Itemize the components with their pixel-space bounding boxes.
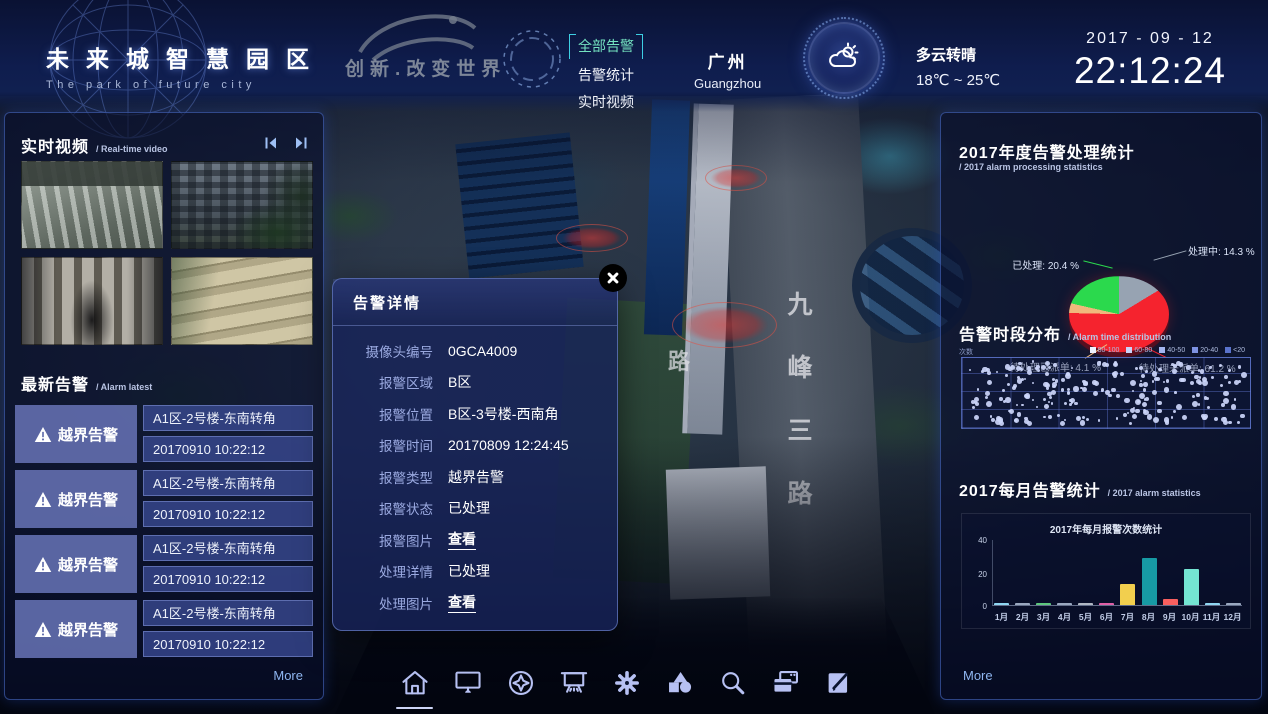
- alarm-list-item[interactable]: 越界告警 A1区-2号楼-东南转角 20170910 10:22:12: [15, 405, 313, 463]
- map-alarm-zone[interactable]: [705, 165, 767, 191]
- camera-id-value: 0GCA4009: [448, 343, 517, 359]
- bar-ytick: 40: [965, 536, 987, 545]
- cloud-sun-icon: [824, 38, 864, 78]
- pie-leader-line: [1154, 250, 1187, 260]
- alarm-list: 越界告警 A1区-2号楼-东南转角 20170910 10:22:12 越界告警…: [15, 405, 313, 658]
- alarm-type: 越界告警: [58, 619, 118, 640]
- alarm-time: 20170910 10:22:12: [143, 501, 313, 527]
- weather-widget: [808, 22, 880, 94]
- alarm-status-value: 已处理: [448, 498, 490, 518]
- alarm-location: A1区-2号楼-东南转角: [143, 405, 313, 431]
- ink-ring-decoration: [497, 24, 567, 94]
- city-name-en: Guangzhou: [694, 76, 761, 91]
- field-label: 报警类型: [347, 467, 433, 487]
- left-panel-more-link[interactable]: More: [273, 668, 303, 683]
- search-icon[interactable]: [716, 663, 749, 703]
- process-image-link[interactable]: 查看: [448, 592, 476, 613]
- nav-item-all-alarms[interactable]: 全部告警: [569, 34, 643, 58]
- alarm-section-subtitle: / Alarm latest: [96, 382, 152, 392]
- map-road-name-left: 路: [668, 344, 690, 376]
- field-label: 报警区域: [347, 372, 433, 392]
- bar-ytick: 20: [965, 570, 987, 579]
- scatter-plot: [961, 357, 1251, 429]
- pie-section-title: 2017年度告警处理统计: [959, 139, 1135, 163]
- monitor-icon[interactable]: [451, 663, 484, 703]
- warning-icon: [34, 426, 52, 443]
- alarm-type-value: 越界告警: [448, 467, 504, 487]
- video-grid: [21, 161, 313, 345]
- video-prev-icon[interactable]: [263, 135, 279, 151]
- map-road-name: 九峰三路: [780, 291, 816, 543]
- brand-block: 未来城智慧园区 The park of future city: [46, 40, 326, 91]
- field-label: 报警图片: [347, 530, 433, 550]
- pie-label-processing: 处理中: 14.3 %: [1188, 243, 1255, 258]
- alarm-image-link[interactable]: 查看: [448, 529, 476, 550]
- alarm-area-value: B区: [448, 372, 471, 392]
- edit-icon[interactable]: [822, 663, 855, 703]
- field-label: 报警时间: [347, 435, 433, 455]
- alarm-location: A1区-2号楼-东南转角: [143, 535, 313, 561]
- field-label: 报警位置: [347, 404, 433, 424]
- alarm-detail-modal: 告警详情 摄像头编号0GCA4009 报警区域B区 报警位置B区-3号楼-西南角…: [332, 278, 618, 631]
- app-subtitle: The park of future city: [46, 79, 326, 91]
- video-section-subtitle: / Real-time video: [96, 144, 168, 154]
- bar-plot: [992, 540, 1242, 606]
- nav-item-alarm-stats[interactable]: 告警统计: [578, 65, 643, 85]
- map-glass-building: [644, 99, 690, 335]
- app-title: 未来城智慧园区: [46, 40, 326, 74]
- alarm-location: A1区-2号楼-东南转角: [143, 600, 313, 626]
- scatter-section-subtitle: / Alarm time distribution: [1068, 332, 1171, 342]
- video-section-title: 实时视频: [21, 133, 89, 157]
- process-detail-value: 已处理: [448, 561, 490, 581]
- scatter-section-title: 告警时段分布: [959, 321, 1061, 345]
- map-white-tower: [682, 103, 733, 434]
- weather-temperature: 18℃ ~ 25℃: [916, 71, 1000, 89]
- scatter-legend: 80-10060-8040-5020-40<20: [1090, 347, 1245, 354]
- shapes-icon[interactable]: [663, 663, 696, 703]
- bar-section-subtitle: / 2017 alarm statistics: [1108, 488, 1201, 498]
- alarm-time-value: 20170809 12:24:45: [448, 437, 569, 453]
- alarm-time: 20170910 10:22:12: [143, 566, 313, 592]
- pie-label-processed: 已处理: 20.4 %: [967, 257, 1079, 272]
- alarm-list-item[interactable]: 越界告警 A1区-2号楼-东南转角 20170910 10:22:12: [15, 470, 313, 528]
- field-label: 处理图片: [347, 593, 433, 613]
- field-label: 摄像头编号: [347, 341, 433, 361]
- home-icon[interactable]: [398, 663, 431, 703]
- field-label: 处理详情: [347, 561, 433, 581]
- dock-bar: [398, 663, 855, 703]
- alarm-type: 越界告警: [58, 554, 118, 575]
- map-alarm-zone[interactable]: [556, 224, 628, 252]
- pie-section-subtitle: / 2017 alarm processing statistics: [959, 162, 1103, 172]
- dashboard-root: 九峰三路 路 未来城智慧园区 The park of future city: [0, 0, 1268, 714]
- nav-item-realtime-video[interactable]: 实时视频: [578, 92, 643, 112]
- alarm-section-title: 最新告警: [21, 371, 89, 395]
- bar-chart-title: 2017年每月报警次数统计: [962, 521, 1250, 536]
- logo-slogan: 创新.改变世界: [345, 54, 506, 81]
- weather-description: 多云转晴: [916, 44, 1000, 65]
- datetime-block: 2017 - 09 - 12 22:12:24: [1074, 30, 1226, 92]
- pie-leader-line: [1083, 260, 1112, 268]
- compass-icon[interactable]: [504, 663, 537, 703]
- city-block: 广州 Guangzhou: [694, 48, 761, 91]
- bar-months: 1月2月3月4月5月6月7月8月9月10月11月12月: [992, 611, 1242, 623]
- current-date: 2017 - 09 - 12: [1074, 30, 1226, 48]
- alarm-time: 20170910 10:22:12: [143, 436, 313, 462]
- left-panel: 实时视频 / Real-time video 最新告警 / Alarm late…: [4, 112, 324, 700]
- alarm-list-item[interactable]: 越界告警 A1区-2号楼-东南转角 20170910 10:22:12: [15, 600, 313, 658]
- video-feed-stairs[interactable]: [171, 257, 313, 345]
- top-nav: 全部告警 告警统计 实时视频: [578, 34, 643, 112]
- alarm-position-value: B区-3号楼-西南角: [448, 404, 558, 424]
- alarm-type: 越界告警: [58, 424, 118, 445]
- warning-icon: [34, 621, 52, 638]
- alarm-type: 越界告警: [58, 489, 118, 510]
- weather-text-block: 多云转晴 18℃ ~ 25℃: [916, 44, 1000, 89]
- alarm-list-item[interactable]: 越界告警 A1区-2号楼-东南转角 20170910 10:22:12: [15, 535, 313, 593]
- current-time: 22:12:24: [1074, 50, 1226, 92]
- alarm-location: A1区-2号楼-东南转角: [143, 470, 313, 496]
- map-alarm-zone[interactable]: [672, 302, 777, 348]
- map-low-building: [666, 466, 770, 599]
- scatter-axis-label: 次数: [959, 347, 973, 357]
- video-feed-lobby[interactable]: [21, 257, 163, 345]
- bar-chart-area: 2017年每月报警次数统计 40 20 0 1月2月3月4月5月6月7月8月9月…: [961, 513, 1251, 629]
- modal-title: 告警详情: [353, 292, 421, 313]
- field-label: 报警状态: [347, 498, 433, 518]
- cards-icon[interactable]: [769, 663, 802, 703]
- pie-chart-area: 已处理: 20.4 % 处理中: 14.3 % 待处理已派单: 4.1 % 待处…: [941, 179, 1263, 329]
- alarm-time: 20170910 10:22:12: [143, 631, 313, 657]
- right-panel-more-link[interactable]: More: [963, 668, 993, 683]
- warning-icon: [34, 491, 52, 508]
- screen-icon[interactable]: [557, 663, 590, 703]
- video-next-icon[interactable]: [293, 135, 309, 151]
- header-bar: 未来城智慧园区 The park of future city 创新.改变世界 …: [0, 0, 1268, 112]
- video-feed-building[interactable]: [171, 161, 313, 249]
- close-icon[interactable]: [599, 264, 627, 292]
- city-name-cn: 广州: [694, 48, 761, 73]
- right-panel: 2017年度告警处理统计 / 2017 alarm processing sta…: [940, 112, 1262, 700]
- warning-icon: [34, 556, 52, 573]
- map-solar-roof: [455, 132, 583, 278]
- gear-icon[interactable]: [610, 663, 643, 703]
- bar-section-title: 2017每月告警统计: [959, 477, 1101, 501]
- video-feed-street[interactable]: [21, 161, 163, 249]
- bar-ytick: 0: [965, 602, 987, 611]
